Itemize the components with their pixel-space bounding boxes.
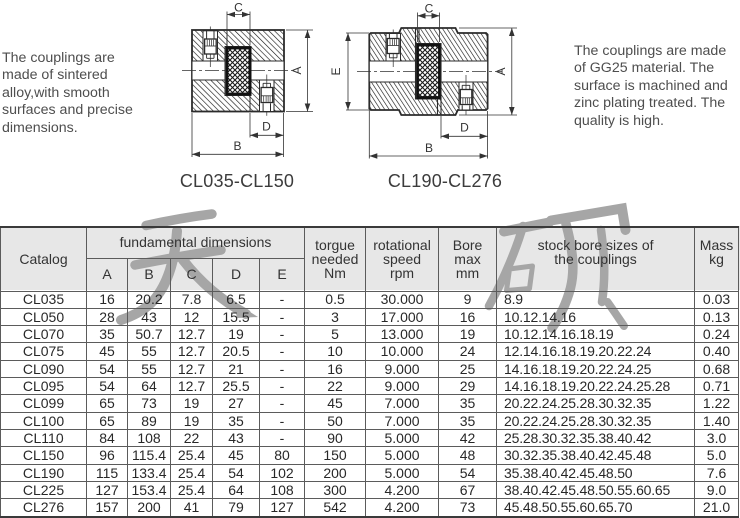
svg-text:D: D — [460, 121, 469, 135]
svg-text:E: E — [329, 67, 343, 75]
svg-text:A: A — [494, 67, 508, 75]
svg-text:D: D — [262, 120, 271, 134]
svg-text:B: B — [425, 141, 433, 155]
svg-text:C: C — [234, 1, 243, 15]
svg-text:B: B — [233, 139, 241, 153]
svg-text:C: C — [425, 2, 434, 16]
svg-text:A: A — [290, 66, 304, 74]
